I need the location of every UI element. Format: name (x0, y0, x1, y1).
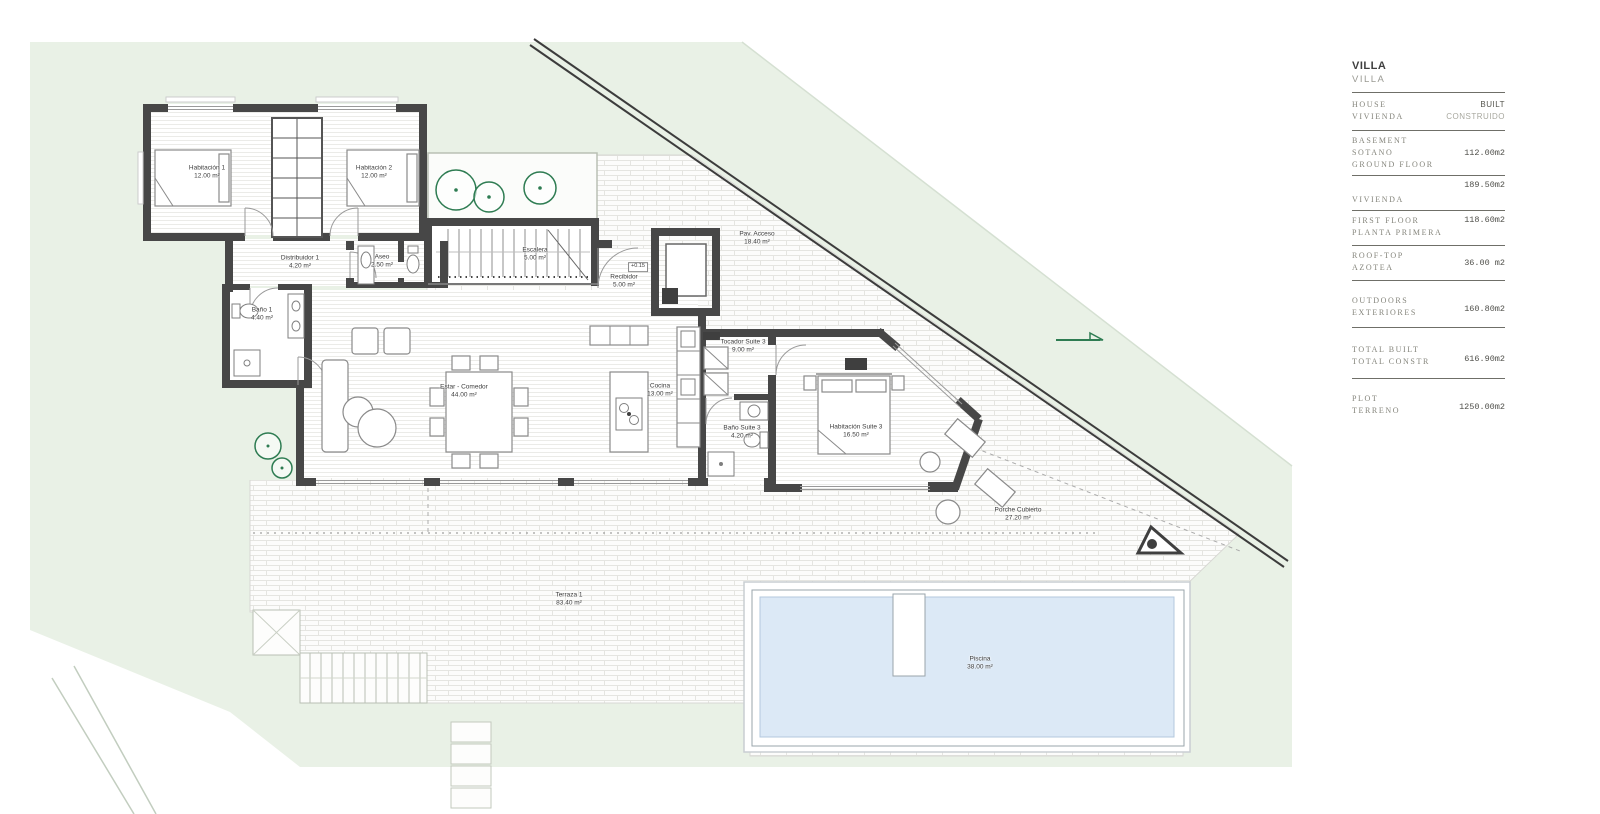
area-table-header: HOUSEVIVIENDA BUILTCONSTRUIDO (1352, 92, 1505, 131)
floorplan-sheet: Habitación 112.00 m²Habitación 212.00 m²… (0, 0, 1600, 814)
header-label-built: BUILTCONSTRUIDO (1446, 99, 1505, 125)
row-label: ROOF-TOPAZOTEA (1352, 250, 1404, 276)
wardrobe-closet (272, 118, 322, 237)
row-label: BASEMENTSOTANOGROUND FLOOR (1352, 135, 1434, 171)
row-label: TOTAL BUILTTOTAL CONSTR (1352, 344, 1430, 374)
row-value: 616.90m2 (1464, 354, 1505, 364)
row-label: PLOTTERRENO (1352, 393, 1400, 421)
row-value: 1250.00m2 (1459, 402, 1505, 412)
row-value: 160.80m2 (1464, 304, 1505, 314)
bed-bedroom1 (155, 150, 231, 206)
garden-path-line (74, 666, 156, 814)
garden-path-line (52, 678, 134, 814)
area-table-panel: VILLA VILLA HOUSEVIVIENDA BUILTCONSTRUID… (1352, 60, 1505, 425)
swimming-pool (744, 582, 1190, 752)
area-table-row: FIRST FLOORPLANTA PRIMERA118.60m2 (1352, 211, 1505, 246)
row-label: VIVIENDA (1352, 194, 1505, 206)
area-table-row: OUTDOORSEXTERIORES160.80m2 (1352, 291, 1505, 328)
row-label: FIRST FLOORPLANTA PRIMERA (1352, 215, 1442, 241)
area-table-row: BASEMENTSOTANOGROUND FLOOR112.00m2 (1352, 131, 1505, 176)
panel-subtitle: VILLA (1352, 74, 1505, 85)
level-marker: +0.15 (628, 262, 648, 272)
header-label-house: HOUSEVIVIENDA (1352, 99, 1404, 125)
area-table-row: 189.50m2VIVIENDA (1352, 176, 1505, 211)
pool-steps-notch (893, 594, 925, 676)
row-value: 112.00m2 (1464, 148, 1505, 158)
row-value: 36.00 m2 (1464, 258, 1505, 268)
row-value: 118.60m2 (1464, 215, 1505, 225)
area-table-rows: BASEMENTSOTANOGROUND FLOOR112.00m2189.50… (1352, 131, 1505, 425)
row-value: 189.50m2 (1464, 180, 1505, 190)
area-table-row: ROOF-TOPAZOTEA36.00 m2 (1352, 246, 1505, 281)
bed-bedroom2 (347, 150, 419, 206)
area-table-row: PLOTTERRENO1250.00m2 (1352, 386, 1505, 425)
row-label: OUTDOORSEXTERIORES (1352, 295, 1417, 323)
area-table-row: TOTAL BUILTTOTAL CONSTR616.90m2 (1352, 337, 1505, 379)
panel-title: VILLA (1352, 60, 1505, 72)
